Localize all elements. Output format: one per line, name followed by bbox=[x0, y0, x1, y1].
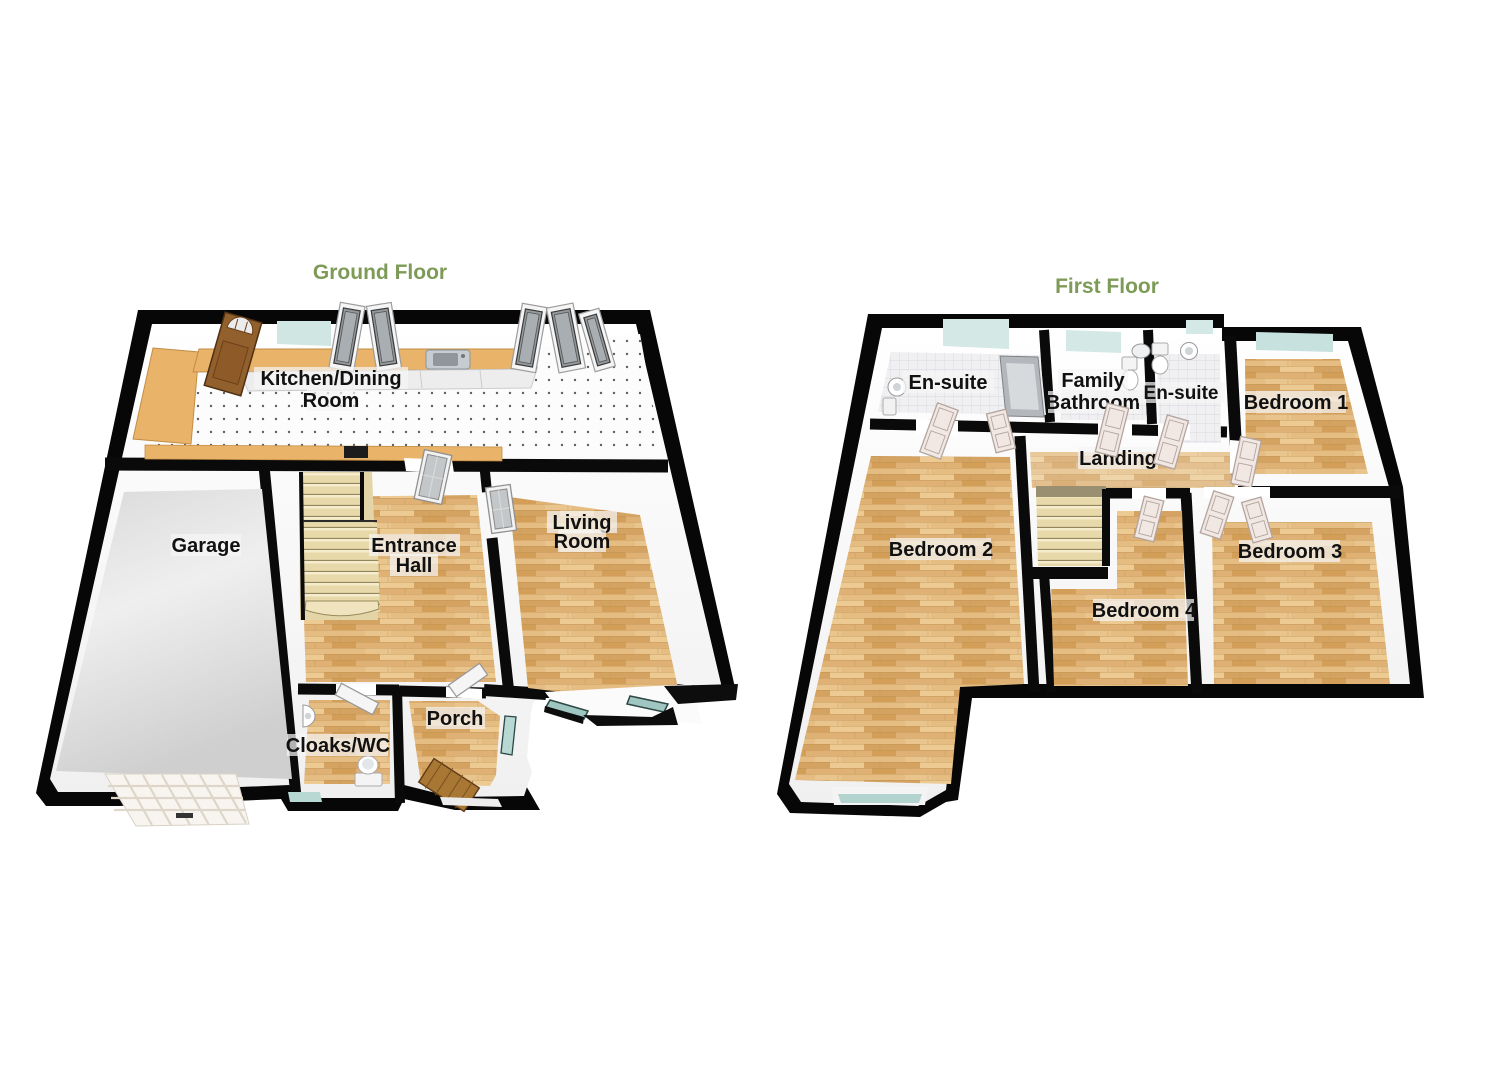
svg-text:En-suite: En-suite bbox=[1144, 383, 1219, 404]
svg-text:Porch: Porch bbox=[427, 708, 484, 730]
svg-text:Entrance: Entrance bbox=[371, 535, 457, 557]
svg-text:Bedroom 3: Bedroom 3 bbox=[1238, 541, 1342, 563]
svg-text:Cloaks/WC: Cloaks/WC bbox=[286, 735, 390, 757]
svg-text:Bedroom 4: Bedroom 4 bbox=[1092, 600, 1197, 622]
svg-text:Hall: Hall bbox=[396, 555, 433, 577]
svg-text:First Floor: First Floor bbox=[1055, 275, 1159, 298]
svg-text:Bedroom 1: Bedroom 1 bbox=[1244, 392, 1348, 414]
svg-text:Room: Room bbox=[303, 390, 360, 412]
svg-text:Kitchen/Dining: Kitchen/Dining bbox=[260, 368, 401, 390]
svg-text:Ground Floor: Ground Floor bbox=[313, 261, 447, 284]
svg-text:Room: Room bbox=[554, 531, 611, 553]
svg-text:Family: Family bbox=[1061, 370, 1125, 392]
svg-text:Bedroom 2: Bedroom 2 bbox=[889, 539, 993, 561]
svg-text:En-suite: En-suite bbox=[909, 372, 988, 394]
svg-text:Garage: Garage bbox=[172, 535, 241, 557]
